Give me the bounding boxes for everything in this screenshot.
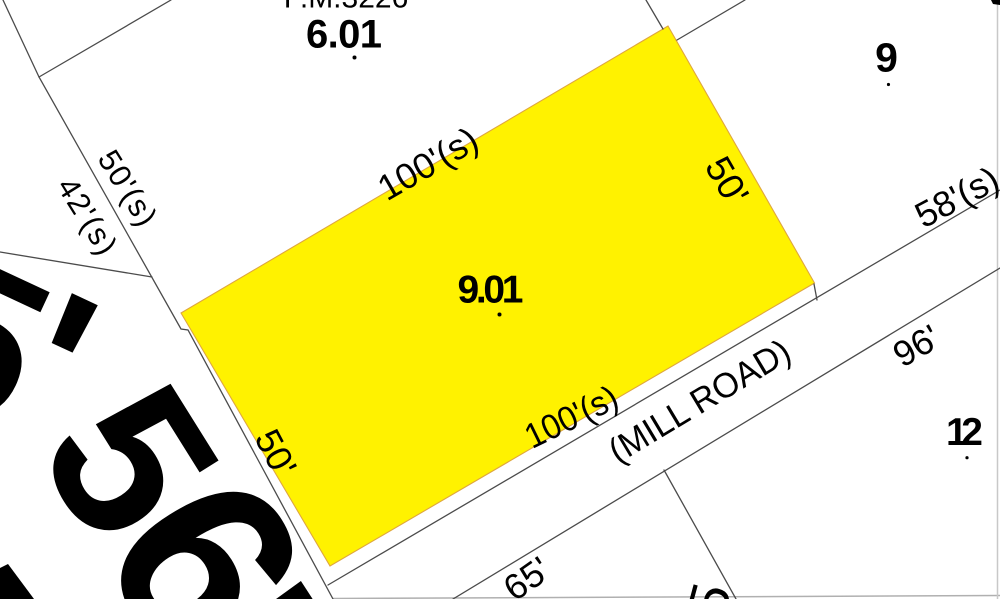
svg-text:9: 9 [875,35,898,81]
svg-text:12: 12 [946,411,983,454]
svg-text:6.01: 6.01 [306,13,382,57]
svg-text:9.01: 9.01 [458,269,524,312]
